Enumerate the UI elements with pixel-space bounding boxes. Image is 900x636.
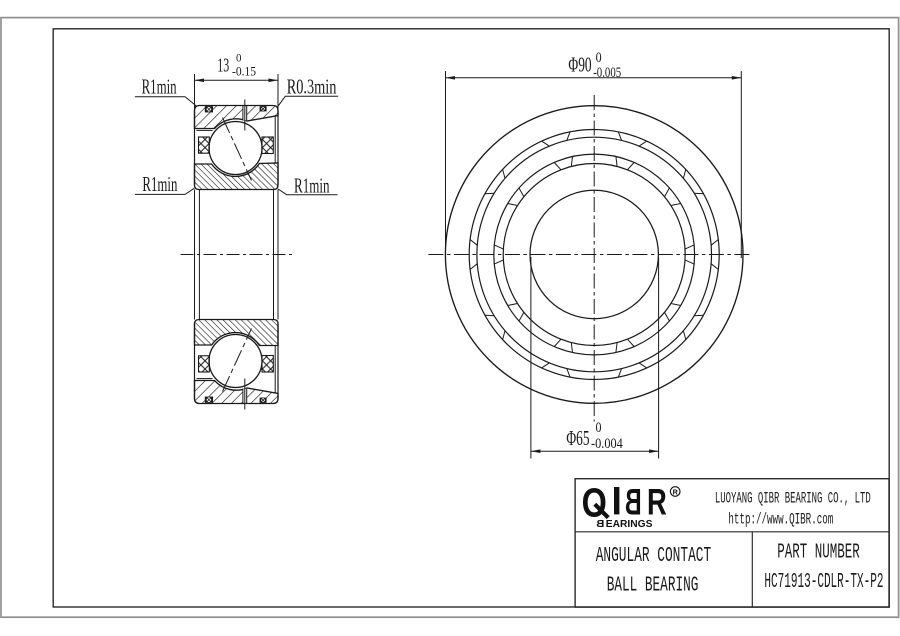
svg-text:R: R	[647, 480, 667, 522]
svg-text:R: R	[673, 488, 679, 497]
svg-text:LUOYANG QIBR BEARING CO., LTD: LUOYANG QIBR BEARING CO., LTD	[715, 490, 871, 508]
svg-text:R0.3min: R0.3min	[287, 75, 337, 98]
svg-text:-0.15: -0.15	[232, 64, 256, 78]
svg-text:Φ65: Φ65	[566, 426, 589, 450]
svg-text:B: B	[625, 480, 642, 522]
svg-text:0: 0	[236, 52, 242, 64]
svg-text:PART NUMBER: PART NUMBER	[777, 541, 860, 565]
svg-text:R1min: R1min	[142, 173, 177, 196]
svg-text:-0.005: -0.005	[593, 65, 621, 81]
svg-text:EARINGS: EARINGS	[606, 518, 653, 530]
svg-text:R1min: R1min	[294, 175, 330, 198]
svg-text:HC71913-CDLR-TX-P2: HC71913-CDLR-TX-P2	[764, 570, 883, 594]
svg-text:http://www.QIBR.com: http://www.QIBR.com	[728, 511, 833, 529]
svg-text:0: 0	[596, 420, 602, 436]
svg-text:ANGULAR CONTACT: ANGULAR CONTACT	[596, 544, 712, 568]
svg-text:R1min: R1min	[142, 75, 177, 98]
svg-text:BALL BEARING: BALL BEARING	[607, 574, 699, 598]
svg-text:B: B	[596, 518, 604, 530]
svg-text:Φ90: Φ90	[568, 53, 591, 77]
svg-text:13: 13	[217, 54, 229, 76]
svg-text:-0.004: -0.004	[591, 436, 623, 452]
svg-text:0: 0	[596, 50, 602, 66]
